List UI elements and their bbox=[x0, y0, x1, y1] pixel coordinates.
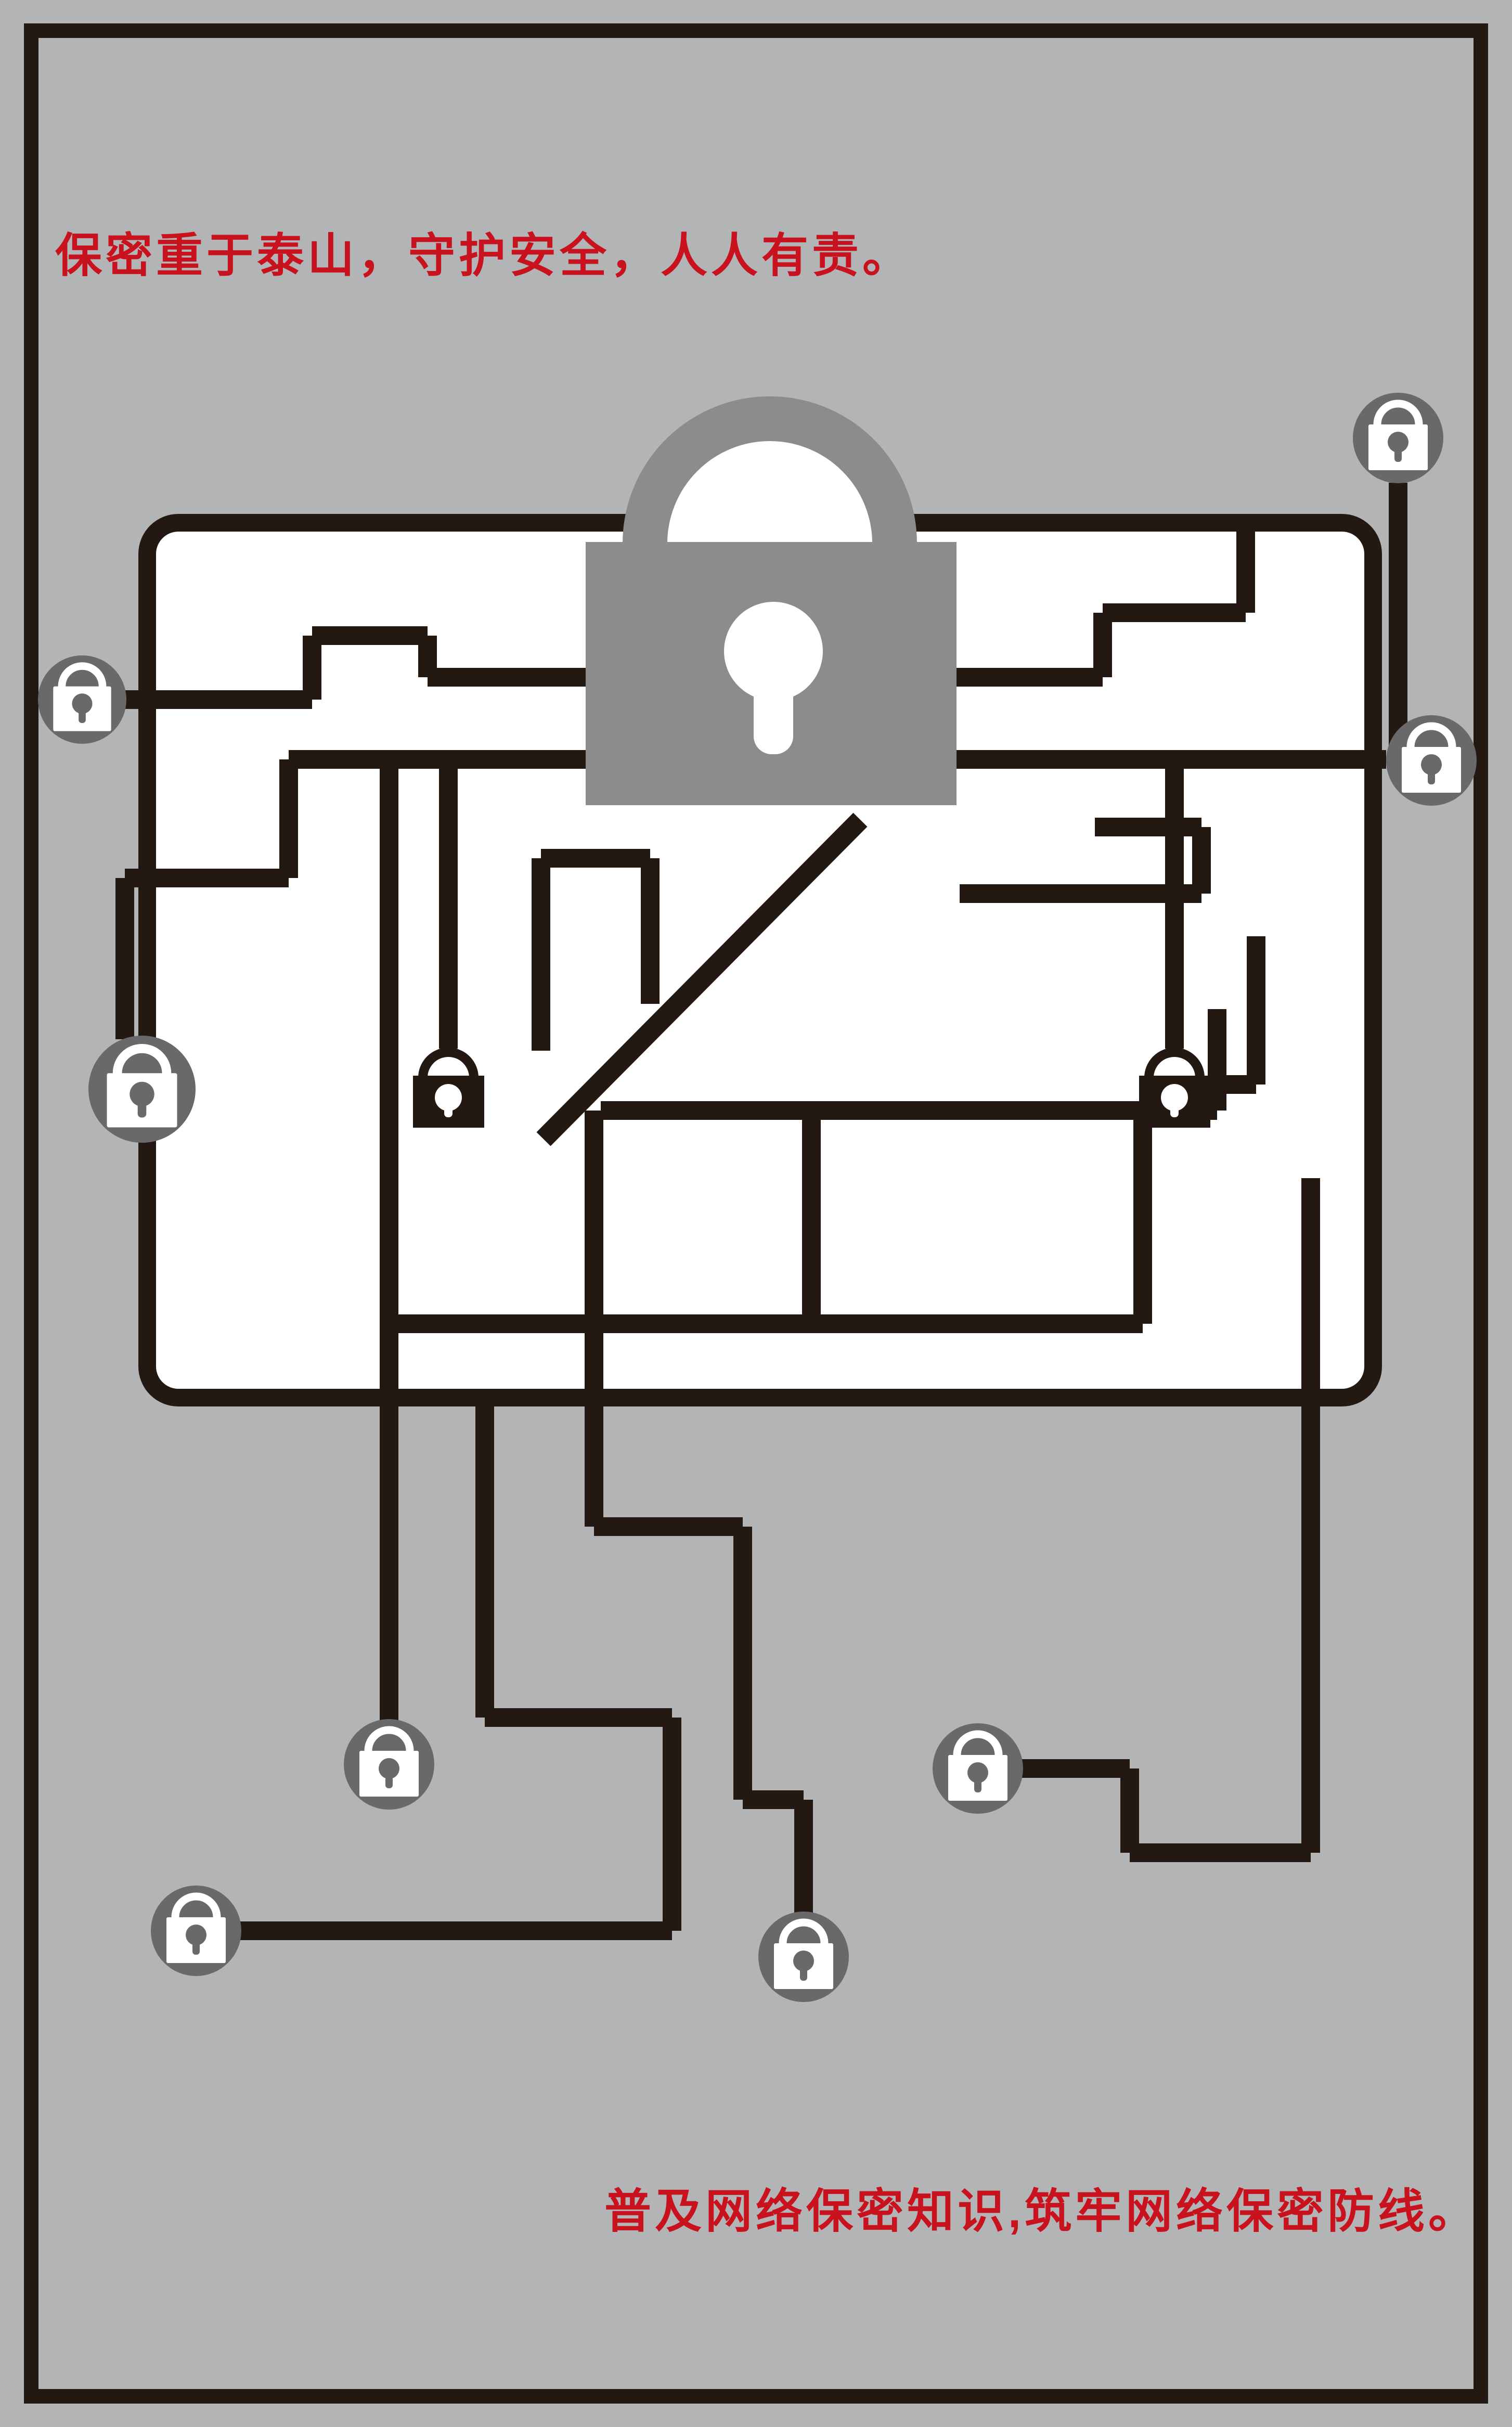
padlock-node-icon bbox=[758, 1912, 849, 2002]
bottom-slogan-text: 普及网络保密知识,筑牢网络保密防线。 bbox=[604, 2173, 1479, 2241]
padlock-node-icon bbox=[933, 1723, 1023, 1814]
padlock-maze-graphic bbox=[0, 0, 1512, 2427]
padlock-node-icon bbox=[88, 1036, 196, 1143]
poster: { "poster": { "top_slogan": "保密重于泰山，守护安全… bbox=[0, 0, 1512, 2427]
padlock-node-icon bbox=[151, 1886, 241, 1976]
padlock-node-icon bbox=[344, 1719, 434, 1810]
big-padlock-icon bbox=[586, 419, 957, 805]
padlock-node-icon bbox=[1353, 393, 1443, 483]
padlock-node-icon bbox=[1386, 715, 1477, 806]
padlock-node-icon bbox=[38, 655, 126, 744]
